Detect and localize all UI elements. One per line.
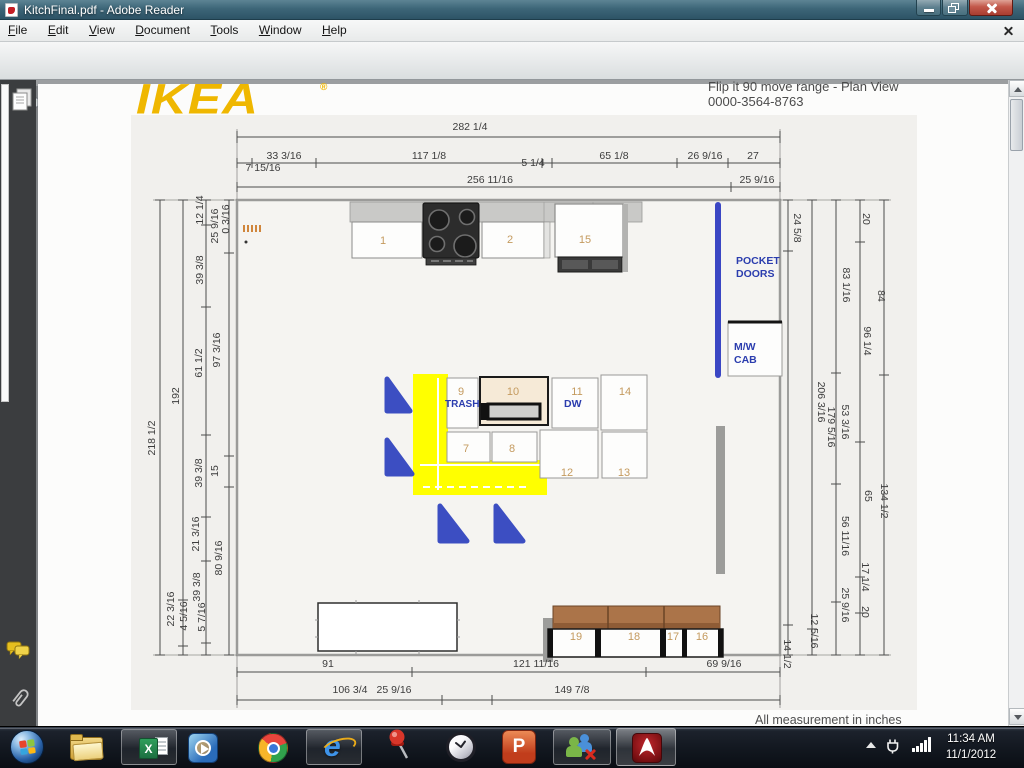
comments-panel-icon[interactable] bbox=[6, 640, 32, 662]
dim-label: 149 7/8 bbox=[554, 684, 589, 696]
dim-label: 7 15/16 bbox=[245, 162, 280, 174]
adobe-a-glyph bbox=[633, 734, 661, 762]
menu-file[interactable]: File bbox=[0, 20, 35, 37]
signal-bar bbox=[924, 740, 927, 752]
dim-label: 121 11/16 bbox=[513, 658, 559, 670]
cabinet-label: 14 bbox=[619, 386, 631, 398]
start-button[interactable] bbox=[10, 730, 44, 764]
windows-flag-icon bbox=[19, 739, 37, 756]
scroll-up-button[interactable] bbox=[1009, 80, 1024, 97]
signal-bar bbox=[920, 743, 923, 752]
dim-label: 4 5/16 bbox=[178, 601, 190, 630]
pdf-document-icon bbox=[5, 3, 18, 17]
dim-label: 12 5/16 bbox=[808, 613, 820, 648]
menu-view[interactable]: View bbox=[81, 20, 123, 37]
taskbar-chrome-button[interactable] bbox=[258, 733, 288, 763]
scroll-down-button[interactable] bbox=[1009, 708, 1024, 725]
close-document-button[interactable] bbox=[1002, 25, 1014, 37]
minimize-icon bbox=[924, 9, 934, 12]
folder-tab bbox=[70, 734, 83, 741]
plan-title-line1: Flip it 90 move range - Plan View bbox=[708, 79, 899, 94]
restore-icon-back bbox=[948, 6, 956, 13]
dim-label: 65 1/8 bbox=[599, 150, 628, 162]
window-title: KitchFinal.pdf - Adobe Reader bbox=[24, 3, 184, 17]
cabinet-label: 10 bbox=[507, 386, 519, 398]
cabinet-label: 13 bbox=[618, 467, 630, 479]
dim-label: 39 3/8 bbox=[193, 458, 205, 487]
dim-label: 22 3/16 bbox=[165, 591, 177, 626]
dim-label: 97 3/16 bbox=[211, 332, 223, 367]
window-titlebar[interactable]: KitchFinal.pdf - Adobe Reader bbox=[0, 0, 1024, 20]
dim-label: 134 1/2 bbox=[878, 483, 890, 518]
cabinet-label: 16 bbox=[696, 631, 708, 643]
attachments-panel-icon[interactable] bbox=[9, 686, 31, 712]
scroll-up-icon bbox=[1014, 87, 1022, 92]
messenger-icon bbox=[566, 733, 600, 763]
dim-label: 53 3/16 bbox=[839, 404, 851, 439]
adobe-reader-icon bbox=[632, 733, 662, 763]
pocket-doors-label: POCKET DOORS bbox=[736, 255, 788, 281]
dim-label: 218 1/2 bbox=[146, 420, 158, 455]
menu-window[interactable]: Window bbox=[251, 20, 310, 37]
flag-pane bbox=[28, 747, 36, 754]
tray-power-plug-icon[interactable] bbox=[884, 737, 902, 755]
dim-label: 56 11/16 bbox=[839, 516, 851, 556]
sidebar-edge-strip bbox=[1, 84, 9, 402]
tray-time: 11:34 AM bbox=[930, 731, 1012, 747]
dim-label: 91 bbox=[322, 658, 334, 670]
cabinet-label: 9 bbox=[458, 386, 464, 398]
dim-label: 96 1/4 bbox=[861, 326, 873, 355]
plan-footer-note: All measurement in inches bbox=[755, 713, 902, 727]
scroll-down-icon bbox=[1014, 715, 1022, 720]
dim-label: 14 1/2 bbox=[781, 639, 793, 668]
menu-tools[interactable]: Tools bbox=[202, 20, 246, 37]
taskbar-clock-gadget-button[interactable] bbox=[446, 732, 476, 762]
menu-help[interactable]: Help bbox=[314, 20, 355, 37]
dim-label: 25 9/16 bbox=[376, 684, 411, 696]
taskbar-pushpin-button[interactable] bbox=[386, 729, 414, 761]
dim-label: 33 3/16 bbox=[266, 150, 301, 162]
dim-label: 256 11/16 bbox=[467, 174, 513, 186]
cabinet-label: 7 bbox=[463, 443, 469, 455]
plan-title: Flip it 90 move range - Plan View 0000-3… bbox=[708, 79, 899, 109]
cabinet-label: 18 bbox=[628, 631, 640, 643]
dim-label: 61 1/2 bbox=[193, 348, 205, 377]
folder-front bbox=[72, 742, 103, 762]
pdf-red-dot bbox=[8, 7, 15, 14]
dim-label: 83 1/16 bbox=[840, 267, 852, 302]
dim-label: 27 bbox=[747, 150, 759, 162]
menu-document[interactable]: Document bbox=[127, 20, 198, 37]
dim-label: 5 1/4 bbox=[521, 157, 544, 169]
taskbar-powerpoint-button[interactable]: P bbox=[502, 730, 536, 764]
desktop: KitchFinal.pdf - Adobe Reader File Edit … bbox=[0, 0, 1024, 768]
dim-label: 84 bbox=[875, 290, 887, 302]
flag-pane bbox=[27, 739, 35, 746]
dim-label: 24 5/8 bbox=[791, 213, 803, 242]
signal-bar bbox=[912, 748, 915, 752]
chrome-hub bbox=[269, 744, 278, 753]
dim-label: 69 9/16 bbox=[706, 658, 741, 670]
tray-network-signal-icon[interactable] bbox=[912, 737, 932, 752]
navigation-sidebar bbox=[0, 80, 36, 726]
pages-panel-icon[interactable] bbox=[11, 88, 35, 114]
dim-label: 39 3/8 bbox=[194, 255, 206, 284]
dim-label: 25 9/16 bbox=[839, 587, 851, 622]
dim-label: 39 3/8 bbox=[191, 572, 203, 601]
cabinet-label: 19 bbox=[570, 631, 582, 643]
tray-clock[interactable]: 11:34 AM 11/1/2012 bbox=[930, 731, 1012, 763]
dim-label: 20 bbox=[859, 606, 871, 618]
excel-icon: X bbox=[135, 734, 163, 762]
scrollbar-thumb[interactable] bbox=[1010, 99, 1023, 151]
dim-label: 5 7/16 bbox=[196, 602, 208, 631]
close-button[interactable] bbox=[969, 0, 1013, 16]
dim-label: 80 9/16 bbox=[213, 540, 225, 575]
taskbar-messenger-button[interactable] bbox=[553, 729, 611, 765]
cabinet-label: 12 bbox=[561, 467, 573, 479]
flag-pane bbox=[20, 748, 28, 755]
dim-label: 192 bbox=[170, 387, 182, 405]
restore-button[interactable] bbox=[942, 0, 968, 16]
dishwasher-label: DW bbox=[564, 398, 582, 411]
cabinet-label: 2 bbox=[507, 234, 513, 246]
cabinet-label: 17 bbox=[667, 631, 679, 643]
ikea-logo: IKEA bbox=[136, 74, 259, 124]
taskbar-explorer-button[interactable] bbox=[70, 734, 104, 761]
play-icon bbox=[201, 744, 209, 754]
chrome-icon bbox=[267, 742, 280, 755]
cabinet-label: 11 bbox=[571, 386, 582, 398]
menu-edit[interactable]: Edit bbox=[40, 20, 77, 37]
dim-label: 0 3/16 bbox=[220, 204, 232, 233]
dim-label: 12 1/4 bbox=[194, 195, 206, 224]
registered-mark: ® bbox=[320, 82, 327, 93]
excel-x-block: X bbox=[139, 738, 158, 759]
dim-label: 15 bbox=[209, 465, 221, 477]
dim-label: 25 9/16 bbox=[739, 174, 774, 186]
dim-label: 106 3/4 bbox=[332, 684, 367, 696]
flag-pane bbox=[19, 740, 27, 747]
signal-bar bbox=[916, 746, 919, 752]
dim-label: 26 9/16 bbox=[687, 150, 722, 162]
minimize-button[interactable] bbox=[916, 0, 941, 16]
plan-title-line2: 0000-3564-8763 bbox=[708, 94, 899, 109]
cabinet-label: 8 bbox=[509, 443, 515, 455]
taskbar-media-player-button[interactable] bbox=[188, 733, 218, 763]
dim-label: 17 1/4 bbox=[859, 562, 871, 591]
tray-show-hidden-icons-button[interactable] bbox=[866, 742, 876, 748]
vertical-scrollbar bbox=[1008, 80, 1024, 726]
cabinet-label: 15 bbox=[579, 234, 591, 246]
taskbar-excel-button[interactable]: X bbox=[121, 729, 177, 765]
dim-label: 117 1/8 bbox=[412, 150, 446, 162]
clock-hands-icon bbox=[449, 735, 473, 759]
tray-date: 11/1/2012 bbox=[930, 747, 1012, 763]
mw-cab-label: M/W CAB bbox=[734, 341, 772, 367]
internet-explorer-icon: e bbox=[324, 730, 354, 764]
taskbar-internet-explorer-button[interactable]: e bbox=[306, 729, 362, 765]
person-green-body bbox=[566, 746, 582, 757]
taskbar-adobe-reader-button[interactable] bbox=[616, 728, 676, 766]
dim-label: 21 3/16 bbox=[190, 516, 202, 551]
dim-label: 65 bbox=[862, 490, 874, 502]
pushpin-icon bbox=[390, 730, 408, 759]
dim-label: 20 bbox=[860, 213, 872, 225]
menu-bar: File Edit View Document Tools Window Hel… bbox=[0, 20, 1024, 42]
cabinet-label: 1 bbox=[380, 235, 386, 247]
dim-label: 206 3/16 bbox=[815, 382, 827, 423]
trash-label: TRASH bbox=[445, 398, 479, 411]
floor-plan-drawing bbox=[131, 115, 917, 710]
dim-label: 282 1/4 bbox=[452, 121, 487, 133]
